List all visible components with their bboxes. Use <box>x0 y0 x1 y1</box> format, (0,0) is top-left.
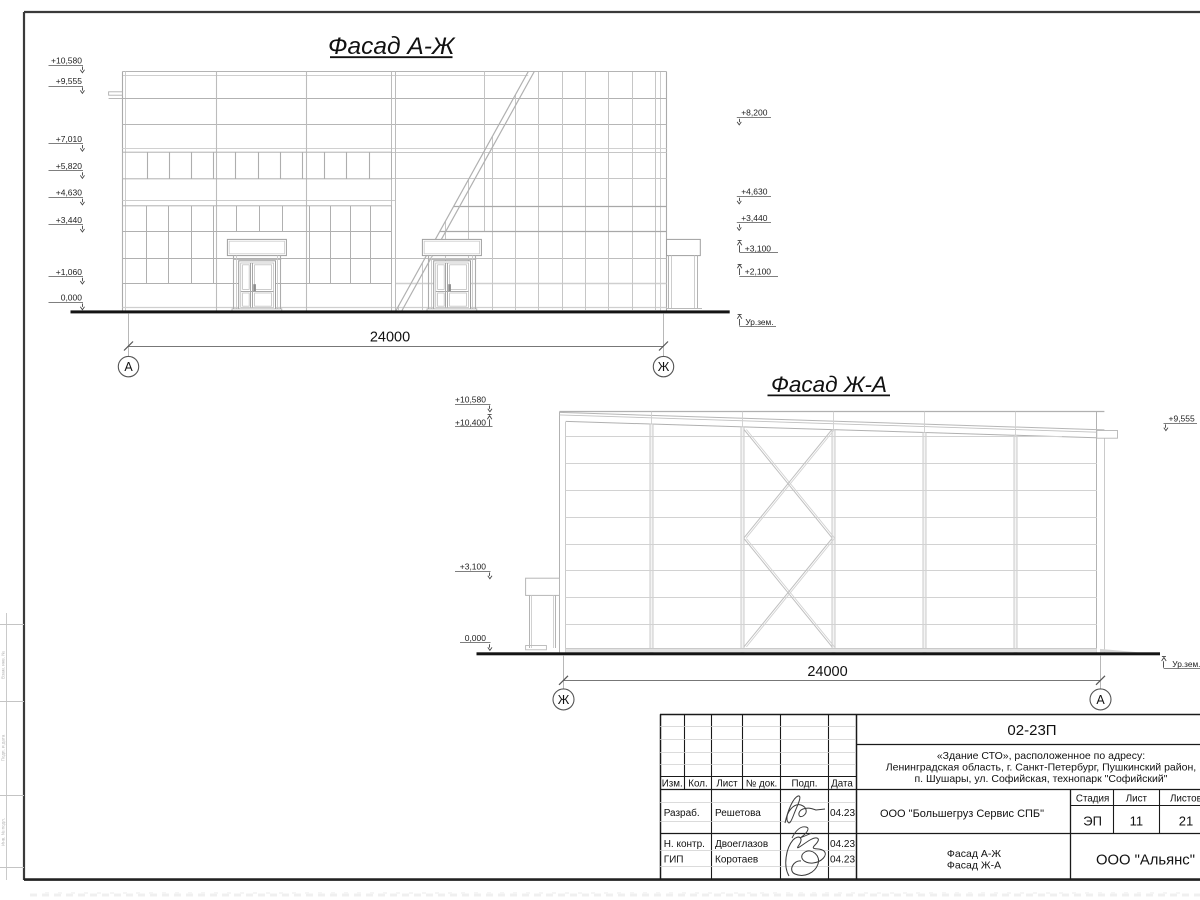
svg-text:Стадия: Стадия <box>1076 794 1109 805</box>
svg-text:Двоеглазов: Двоеглазов <box>715 839 768 850</box>
svg-text:+10,580: +10,580 <box>51 56 82 66</box>
svg-text:Ж: Ж <box>558 693 570 707</box>
svg-text:ЭП: ЭП <box>1083 813 1102 828</box>
svg-text:+1,060: +1,060 <box>56 267 83 277</box>
svg-text:+4,630: +4,630 <box>741 187 768 197</box>
svg-text:Подп. и дата: Подп. и дата <box>1 734 6 761</box>
svg-text:Подп.: Подп. <box>791 778 817 789</box>
svg-text:Кол.: Кол. <box>688 778 707 789</box>
svg-text:Фасад А-Ж: Фасад А-Ж <box>947 848 1001 860</box>
svg-text:+2,100: +2,100 <box>745 266 772 276</box>
svg-text:24000: 24000 <box>370 330 410 346</box>
svg-text:+8,200: +8,200 <box>741 108 768 118</box>
svg-text:А: А <box>124 360 133 374</box>
svg-text:+5,820: +5,820 <box>56 161 83 171</box>
svg-text:+7,010: +7,010 <box>56 134 83 144</box>
svg-text:№ док.: № док. <box>746 778 777 789</box>
svg-text:Фасад Ж-А: Фасад Ж-А <box>771 372 887 397</box>
svg-text:04.23: 04.23 <box>830 854 855 865</box>
svg-text:ООО "Альянс": ООО "Альянс" <box>1096 853 1195 869</box>
svg-text:+3,100: +3,100 <box>460 562 487 572</box>
svg-text:24000: 24000 <box>807 664 847 680</box>
svg-text:0,000: 0,000 <box>61 293 83 303</box>
svg-text:0,000: 0,000 <box>465 633 487 643</box>
svg-text:Дата: Дата <box>831 778 853 789</box>
svg-text:А: А <box>1096 693 1105 707</box>
svg-text:«Здание СТО», расположенное по: «Здание СТО», расположенное по адресу: <box>937 750 1145 762</box>
svg-text:Фасад А-Ж: Фасад А-Ж <box>328 33 456 60</box>
svg-text:11: 11 <box>1130 813 1144 828</box>
svg-text:п. Шушары, ул. Софийская, техн: п. Шушары, ул. Софийская, технопарк "Соф… <box>915 773 1168 785</box>
svg-text:ГИП: ГИП <box>664 854 684 865</box>
svg-text:04.23: 04.23 <box>830 839 855 850</box>
svg-text:02-23П: 02-23П <box>1007 722 1056 739</box>
svg-text:+4,630: +4,630 <box>56 188 83 198</box>
svg-text:Н. контр.: Н. контр. <box>664 839 705 850</box>
svg-text:Ур.зем.: Ур.зем. <box>1172 659 1200 669</box>
svg-text:04.23: 04.23 <box>830 808 855 819</box>
svg-text:21: 21 <box>1179 813 1193 828</box>
svg-text:+9,555: +9,555 <box>56 76 83 86</box>
svg-text:Ленинградская область, г. Санк: Ленинградская область, г. Санкт-Петербур… <box>886 761 1196 773</box>
svg-text:ООО "Большегруз Сервис СПБ": ООО "Большегруз Сервис СПБ" <box>880 808 1044 820</box>
svg-text:+10,580: +10,580 <box>455 395 486 405</box>
svg-text:Решетова: Решетова <box>715 808 761 819</box>
svg-text:Разраб.: Разраб. <box>664 807 700 819</box>
svg-text:+10,400: +10,400 <box>455 417 486 427</box>
svg-text:Листов: Листов <box>1170 794 1200 805</box>
svg-text:Лист: Лист <box>716 778 738 789</box>
svg-text:Фасад Ж-А: Фасад Ж-А <box>947 860 1001 872</box>
svg-text:Ж: Ж <box>658 360 670 374</box>
svg-text:+3,100: +3,100 <box>745 243 772 253</box>
svg-text:Изм.: Изм. <box>662 778 683 789</box>
svg-text:Инв. № подл.: Инв. № подл. <box>1 818 6 846</box>
svg-text:Взам. инв. №: Взам. инв. № <box>1 651 6 679</box>
svg-text:Лист: Лист <box>1126 794 1148 805</box>
svg-text:+3,440: +3,440 <box>741 213 768 223</box>
svg-text:+9,555: +9,555 <box>1169 413 1196 423</box>
svg-text:+3,440: +3,440 <box>56 215 83 225</box>
svg-text:Ур.зем.: Ур.зем. <box>745 317 773 327</box>
svg-text:Коротаев: Коротаев <box>715 854 758 865</box>
